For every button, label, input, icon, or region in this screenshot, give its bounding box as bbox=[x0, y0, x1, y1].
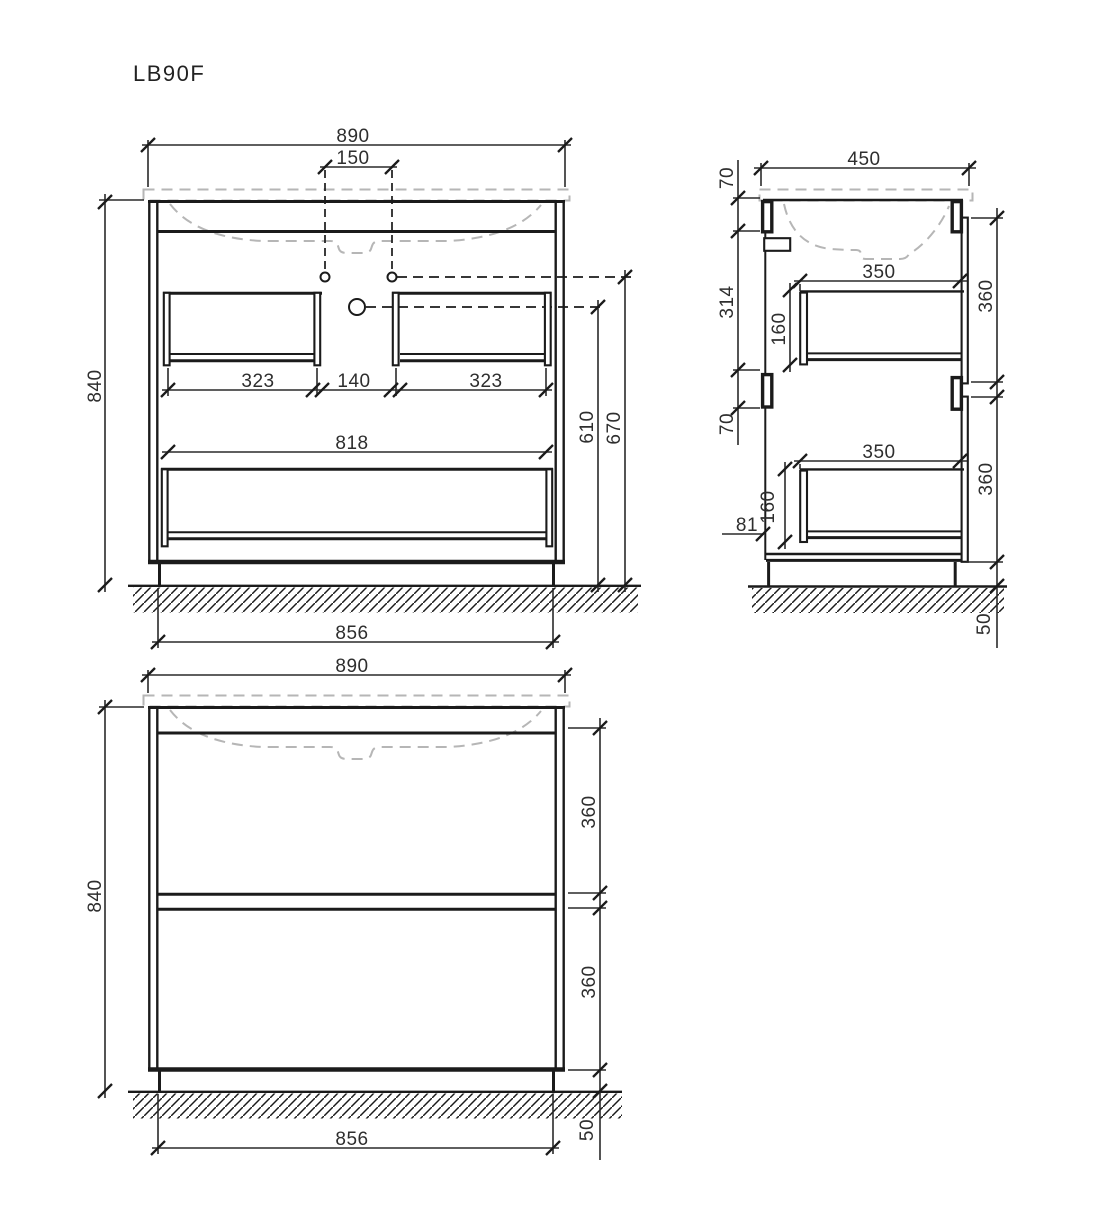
front-view-open: 890 150 840 323 140 323 bbox=[85, 126, 641, 649]
faucet-hole-left bbox=[321, 273, 330, 282]
drain-hole bbox=[349, 299, 365, 315]
basin-outline bbox=[170, 204, 541, 253]
dimension-drawer-chain: 323 140 323 bbox=[161, 368, 553, 397]
dim-label-50-closed: 50 bbox=[577, 1119, 598, 1141]
drawer-front-top-panel bbox=[962, 218, 968, 384]
dim-label-360-side-top: 360 bbox=[976, 279, 997, 312]
drawer-box-upper-left bbox=[163, 293, 322, 366]
dimension-drain-height-610: 610 bbox=[577, 300, 605, 592]
drawer-box-upper-right bbox=[392, 293, 552, 366]
drawing-title: LB90F bbox=[133, 61, 205, 86]
front-view-closed: 890 840 360 360 50 8 bbox=[85, 656, 622, 1160]
wall-hanger-bracket bbox=[764, 238, 790, 251]
floor-hatch-closed bbox=[133, 1094, 622, 1119]
dim-label-160-top: 160 bbox=[769, 312, 790, 345]
technical-drawing-page: LB90F bbox=[0, 0, 1093, 1228]
dim-label-670: 670 bbox=[604, 411, 625, 444]
back-bracket-mid bbox=[763, 375, 772, 407]
dim-label-50-side: 50 bbox=[974, 613, 995, 635]
dim-label-350-bottom: 350 bbox=[862, 442, 895, 463]
dim-label-890-closed: 890 bbox=[335, 656, 368, 677]
side-view: 450 70 314 70 350 160 bbox=[717, 149, 1007, 648]
dim-label-450: 450 bbox=[847, 149, 880, 170]
dim-label-840-closed: 840 bbox=[85, 879, 106, 912]
dim-label-856-closed: 856 bbox=[335, 1129, 368, 1150]
drawer-side-lower bbox=[800, 469, 964, 542]
dim-label-818: 818 bbox=[335, 433, 368, 454]
dimension-width-890-closed: 890 bbox=[141, 656, 572, 693]
dim-label-314: 314 bbox=[717, 285, 738, 318]
dim-label-890: 890 bbox=[336, 126, 369, 147]
dim-label-323-right: 323 bbox=[469, 371, 502, 392]
floor-hatch-side bbox=[752, 588, 1004, 613]
dimension-height-840: 840 bbox=[85, 194, 144, 592]
dim-label-70-top: 70 bbox=[717, 167, 738, 189]
dimension-depth-450: 450 bbox=[754, 149, 976, 186]
dimension-drawer-height-bottom-160: 160 bbox=[758, 462, 792, 549]
back-bracket-top bbox=[763, 202, 772, 232]
dim-label-160-bottom: 160 bbox=[758, 490, 779, 523]
dimension-drawer-depth-bottom-350: 350 bbox=[793, 442, 967, 469]
dimension-height-840-closed: 840 bbox=[85, 700, 144, 1098]
dim-label-360-closed-top: 360 bbox=[579, 795, 600, 828]
dimension-faucet-150: 150 bbox=[318, 148, 399, 174]
drawer-side-upper bbox=[800, 291, 964, 364]
dim-label-856: 856 bbox=[335, 623, 368, 644]
dim-label-81: 81 bbox=[736, 515, 758, 536]
countertop-outline-closed bbox=[144, 696, 570, 707]
front-bracket-mid bbox=[952, 378, 961, 410]
countertop-outline bbox=[144, 190, 570, 201]
drawer-front-bottom-panel bbox=[962, 397, 968, 562]
dimension-drawer-depth-top-350: 350 bbox=[793, 262, 967, 291]
dim-label-323-left: 323 bbox=[241, 371, 274, 392]
faucet-hole-right bbox=[388, 273, 397, 282]
dim-label-840: 840 bbox=[85, 369, 106, 402]
dimension-drawer-height-top-160: 160 bbox=[769, 283, 797, 372]
dim-label-350-top: 350 bbox=[862, 262, 895, 283]
dim-label-360-closed-bottom: 360 bbox=[579, 965, 600, 998]
dimension-bracket-chain: 70 314 70 bbox=[717, 160, 760, 445]
dim-label-150: 150 bbox=[336, 148, 369, 169]
front-bracket-top bbox=[952, 202, 961, 232]
floor-hatch bbox=[133, 588, 638, 613]
basin-side-outline bbox=[784, 204, 949, 259]
dimension-wide-drawer-818: 818 bbox=[161, 433, 553, 459]
dimension-front-chain-side: 360 360 50 bbox=[966, 208, 1004, 648]
drawer-box-lower bbox=[161, 469, 553, 546]
dim-label-610: 610 bbox=[577, 410, 598, 443]
dim-label-140: 140 bbox=[337, 371, 370, 392]
dim-label-360-side-bottom: 360 bbox=[976, 462, 997, 495]
dim-label-70-mid: 70 bbox=[717, 413, 738, 435]
dimension-faucet-height-670: 670 bbox=[604, 270, 632, 592]
